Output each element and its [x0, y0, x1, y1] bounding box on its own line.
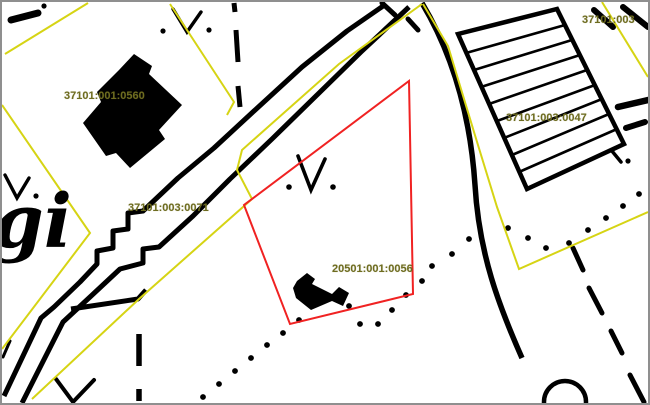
- vegetation-symbol: [56, 379, 94, 402]
- circle-symbol: [544, 381, 586, 403]
- footpath-dots: [200, 191, 642, 400]
- map-viewport[interactable]: gi 37101:001:0560 37101:003:0071 20501:0…: [0, 0, 650, 405]
- dashed-line-topcenter: [234, 3, 240, 107]
- building-footprint: [83, 54, 182, 168]
- parcel-label: 37101:003: [582, 14, 635, 26]
- vegetation-symbol: [286, 156, 336, 190]
- road-fragment-topleft: [11, 3, 47, 20]
- parcel-label: 37101:003:0071: [128, 202, 209, 214]
- parcel-label-selected: 20501:001:0056: [332, 263, 413, 275]
- selected-parcel-outline[interactable]: [244, 81, 413, 324]
- parcel-label: 37101:001:0560: [64, 90, 145, 102]
- building-footprint: [293, 273, 349, 310]
- dashed-line-bottomright: [573, 248, 644, 402]
- map-canvas: [2, 2, 648, 403]
- place-name-label: gi: [0, 185, 72, 259]
- parcel-label: 37101:003:0047: [506, 112, 587, 124]
